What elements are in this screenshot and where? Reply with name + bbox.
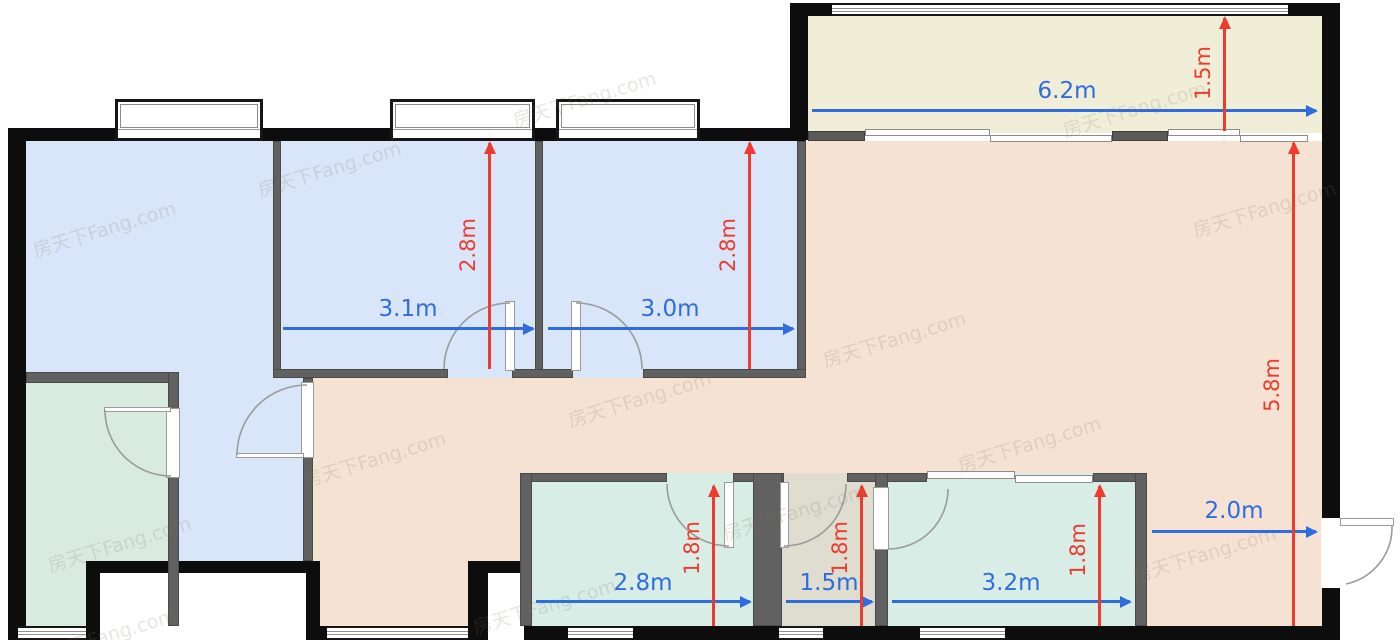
balcony-window [832,3,1288,16]
wall [520,473,667,482]
dim-label: 6.2m [1038,78,1097,104]
wall [1135,473,1147,626]
dim-label: 2.0m [1205,498,1264,524]
dim-arrow-h [283,327,533,330]
exterior-notch-left [100,573,306,640]
door-leaf [104,407,171,412]
dim-label: 5.8m [1260,358,1284,412]
dim-label: 1.8m [680,521,704,575]
wall [8,128,26,640]
window [327,626,468,640]
balcony-partition-post [808,131,865,141]
dim-arrow-v [488,143,491,369]
sliding-door-sash [865,129,990,136]
balcony-floor [806,14,1322,133]
dim-arrow-v [748,143,751,369]
wall [1322,3,1340,518]
bedroom-1-floor [26,141,281,378]
dim-arrow-h [536,600,750,603]
dim-label: 3.1m [379,296,438,322]
dim-label: 2.8m [456,218,480,272]
door-leaf [724,482,734,548]
balcony-partition-post [1112,131,1168,141]
living-upper-floor [798,141,1322,373]
window [920,626,1005,640]
door-opening [873,487,889,550]
wall [535,141,543,378]
wall [86,561,100,640]
wall [512,369,573,378]
wall [520,473,532,626]
door-opening [301,382,314,458]
dim-arrow-v [1292,143,1295,626]
window-sash [927,471,1015,479]
door-leaf [780,482,789,548]
bedroom-2-floor [273,141,543,378]
wall [26,372,179,383]
bay-window [556,99,700,141]
dim-arrow-h [892,600,1130,603]
window [568,626,633,640]
dim-arrow-v [1098,486,1101,626]
floor-plan-canvas: 3.1m 3.0m 6.2m 2.8m 1.5m 3.2m 2.0m 2.8m … [0,0,1400,640]
wall [643,369,806,378]
dim-arrow-v [860,486,863,626]
entry-door-opening [1321,518,1341,588]
dim-label: 1.8m [828,521,852,575]
wall [86,561,320,573]
bay-window [115,99,263,141]
door-leaf [505,301,515,371]
window [18,626,86,640]
dim-label: 1.5m [1191,46,1215,100]
wall [790,3,808,140]
dim-label: 2.8m [716,218,740,272]
dim-arrow-h [812,109,1316,112]
wall [273,141,281,378]
door-leaf [571,301,581,371]
dim-label: 3.2m [982,570,1041,596]
dim-label: 3.0m [641,296,700,322]
window [779,626,823,640]
dim-label: 2.8m [614,570,673,596]
hallway-floor [172,372,306,561]
sliding-door-sash [1168,129,1240,136]
door-leaf [236,453,304,458]
dim-arrow-h [548,327,793,330]
dim-arrow-v [712,486,715,626]
wall [306,561,320,640]
sliding-door-sash [990,135,1112,142]
window-sash [1015,475,1093,483]
wall [797,141,806,378]
wall [273,369,448,378]
dim-label: 1.8m [1066,523,1090,577]
dim-arrow-v [1223,18,1226,131]
wall [468,561,488,640]
door-opening [166,408,180,478]
bay-window [390,99,535,141]
wall [753,473,782,626]
entry-door-leaf [1340,518,1394,526]
exterior-notch-mid [488,573,524,640]
